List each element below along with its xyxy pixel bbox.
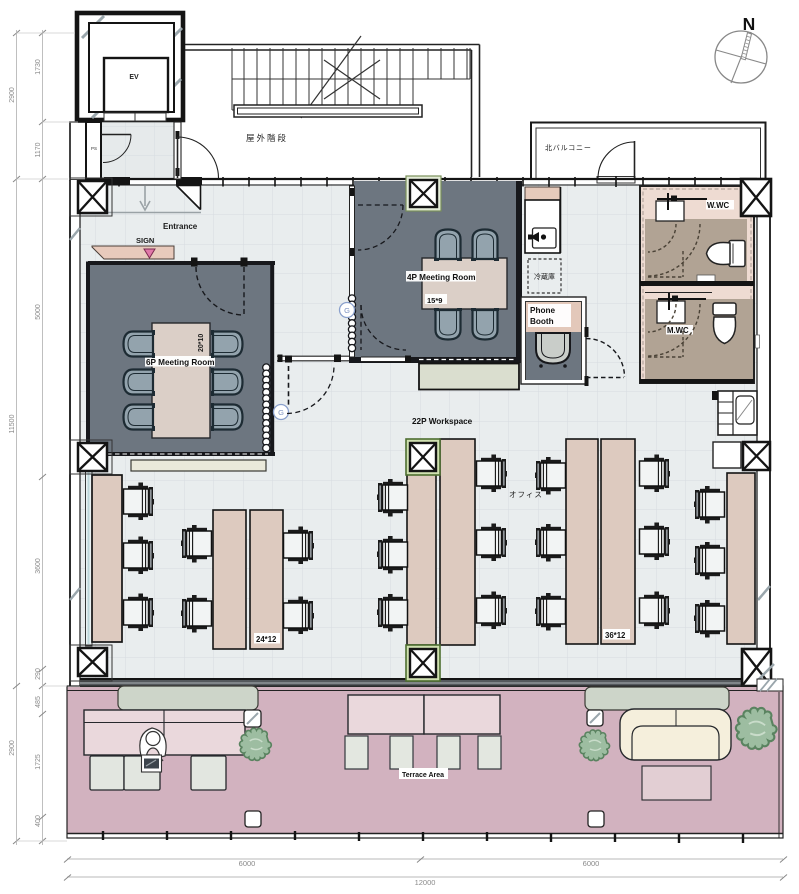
- svg-text:冷蔵庫: 冷蔵庫: [534, 272, 555, 281]
- svg-text:15*9: 15*9: [427, 296, 442, 305]
- svg-text:6P Meeting Room: 6P Meeting Room: [146, 358, 215, 367]
- svg-text:290: 290: [35, 668, 42, 680]
- svg-text:G: G: [278, 408, 284, 417]
- svg-text:3600: 3600: [35, 558, 42, 574]
- svg-text:Phone: Phone: [530, 306, 555, 315]
- svg-text:EV: EV: [129, 74, 139, 81]
- svg-text:24*12: 24*12: [256, 635, 277, 644]
- svg-text:Booth: Booth: [530, 317, 554, 326]
- svg-text:オフィス: オフィス: [509, 490, 543, 499]
- svg-text:400: 400: [35, 815, 42, 827]
- svg-text:20*10: 20*10: [198, 334, 205, 352]
- svg-text:36*12: 36*12: [605, 631, 626, 640]
- svg-text:G: G: [344, 306, 350, 315]
- svg-text:W.WC: W.WC: [707, 201, 729, 210]
- svg-text:2900: 2900: [9, 87, 16, 103]
- svg-text:485: 485: [35, 696, 42, 708]
- svg-text:PS: PS: [91, 146, 97, 151]
- svg-text:Terrace Area: Terrace Area: [402, 772, 444, 779]
- svg-text:5000: 5000: [35, 304, 42, 320]
- svg-text:N: N: [743, 14, 756, 34]
- svg-text:SIGN: SIGN: [136, 236, 154, 245]
- svg-text:1730: 1730: [35, 59, 42, 75]
- svg-text:Entrance: Entrance: [163, 222, 198, 231]
- svg-text:1725: 1725: [35, 754, 42, 770]
- svg-text:4P Meeting Room: 4P Meeting Room: [407, 273, 476, 282]
- svg-text:22P Workspace: 22P Workspace: [412, 417, 473, 426]
- svg-text:11500: 11500: [9, 414, 16, 433]
- svg-text:1170: 1170: [35, 142, 42, 157]
- svg-text:12000: 12000: [415, 878, 436, 887]
- svg-text:6000: 6000: [583, 859, 600, 868]
- svg-text:2900: 2900: [9, 740, 16, 756]
- svg-text:M.WC: M.WC: [667, 326, 689, 335]
- svg-text:6000: 6000: [239, 859, 256, 868]
- svg-text:屋外階段: 屋外階段: [246, 133, 288, 143]
- svg-text:北バルコニー: 北バルコニー: [545, 144, 592, 152]
